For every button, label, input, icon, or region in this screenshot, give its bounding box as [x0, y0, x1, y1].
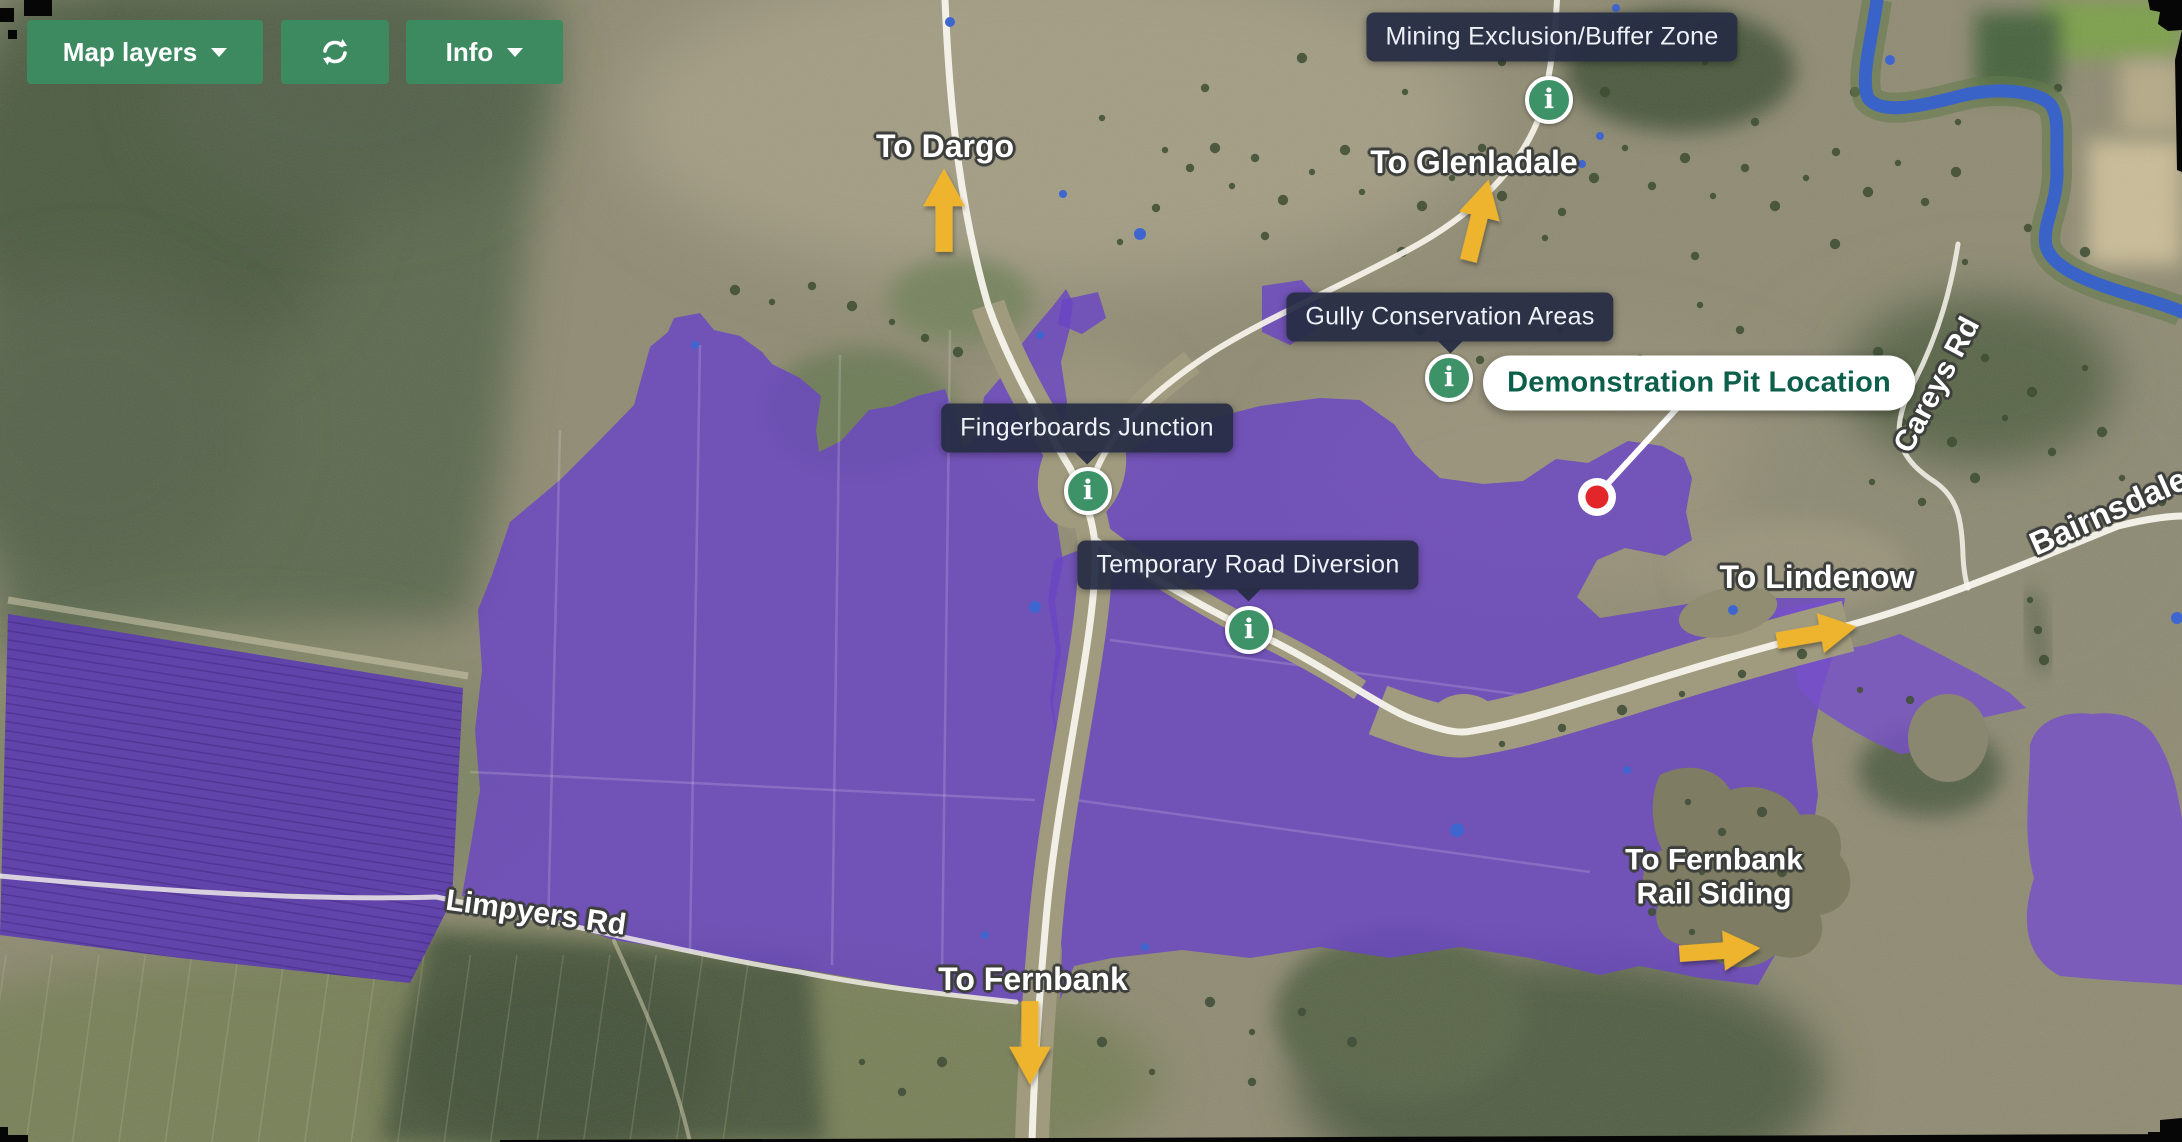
label-to-fernbank-rail-siding: To Fernbank Rail Siding [1625, 843, 1803, 910]
tooltip-temporary-label: Temporary Road Diversion [1096, 551, 1399, 579]
label-to-fernbank: To Fernbank [938, 962, 1128, 998]
chevron-down-icon [211, 48, 227, 57]
tooltip-tail [1074, 452, 1100, 465]
info-icon: i [1544, 86, 1554, 113]
label-to-lindenow: To Lindenow [1720, 560, 1915, 596]
chevron-down-icon [507, 48, 523, 57]
label-to-glenladale: To Glenladale [1370, 145, 1577, 181]
tooltip-gully-conservation: Gully Conservation Areas [1286, 293, 1613, 342]
info-label: Info [446, 37, 494, 68]
demonstration-pit-label: Demonstration Pit Location [1507, 367, 1891, 399]
refresh-icon [318, 35, 352, 69]
info-icon: i [1444, 364, 1454, 391]
info-marker-gully[interactable]: i [1425, 354, 1473, 402]
tooltip-gully-label: Gully Conservation Areas [1305, 303, 1594, 331]
label-to-dargo: To Dargo [876, 129, 1014, 165]
pit-marker[interactable] [1578, 478, 1616, 516]
demonstration-pit-callout: Demonstration Pit Location [1483, 356, 1915, 411]
tooltip-mining-label: Mining Exclusion/Buffer Zone [1385, 23, 1718, 51]
tooltip-tail [1235, 589, 1261, 602]
info-button[interactable]: Info [406, 20, 563, 84]
tooltip-tail [1437, 341, 1463, 354]
info-icon: i [1083, 477, 1093, 504]
map-viewport[interactable]: Map layers Info Mining Exclusion/Buffer … [0, 0, 2182, 1142]
refresh-button[interactable] [281, 20, 389, 84]
label-line-1: To Fernbank [1625, 843, 1803, 877]
map-layers-button[interactable]: Map layers [27, 20, 263, 84]
info-marker-temporary[interactable]: i [1225, 606, 1273, 654]
tooltip-temporary-diversion: Temporary Road Diversion [1077, 541, 1418, 590]
map-layers-label: Map layers [63, 37, 197, 68]
label-line-2: Rail Siding [1625, 877, 1803, 911]
tooltip-fingerboards-junction: Fingerboards Junction [941, 404, 1233, 453]
info-icon: i [1244, 616, 1254, 643]
tooltip-mining-exclusion: Mining Exclusion/Buffer Zone [1366, 13, 1737, 62]
tooltip-fingerboards-label: Fingerboards Junction [960, 414, 1214, 442]
info-marker-mining[interactable]: i [1525, 76, 1573, 124]
info-marker-fingerboards[interactable]: i [1064, 467, 1112, 515]
